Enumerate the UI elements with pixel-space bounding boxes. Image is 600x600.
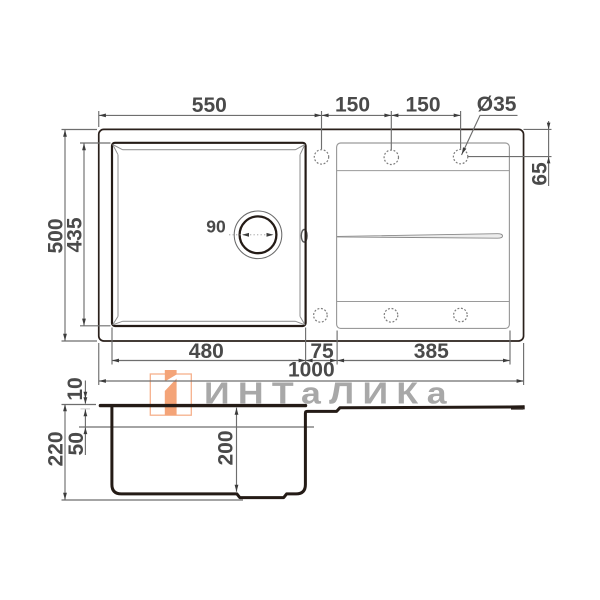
svg-text:90: 90 — [206, 216, 226, 236]
svg-text:550: 550 — [192, 94, 227, 117]
svg-text:50: 50 — [65, 432, 88, 455]
svg-text:385: 385 — [414, 340, 449, 363]
svg-text:200: 200 — [215, 430, 238, 465]
svg-text:65: 65 — [529, 162, 552, 186]
svg-text:10: 10 — [64, 377, 87, 400]
svg-text:1000: 1000 — [288, 358, 335, 381]
svg-text:480: 480 — [189, 340, 224, 363]
svg-text:150: 150 — [405, 94, 440, 117]
svg-text:220: 220 — [44, 431, 67, 466]
svg-text:435: 435 — [64, 217, 87, 252]
svg-text:Ø35: Ø35 — [477, 93, 517, 116]
svg-text:150: 150 — [335, 94, 370, 117]
